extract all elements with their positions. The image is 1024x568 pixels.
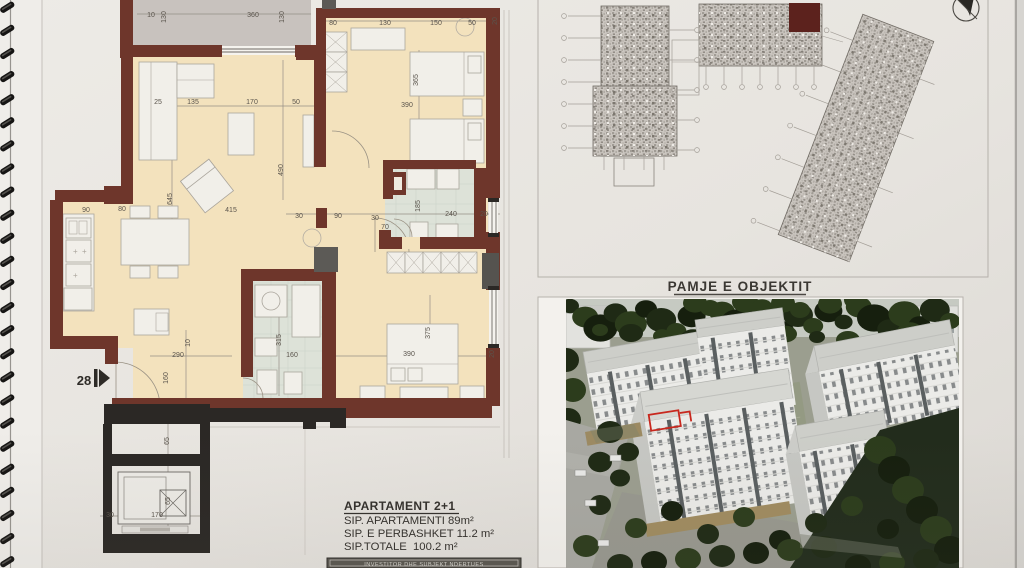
- svg-text:+: +: [73, 271, 78, 280]
- svg-text:185: 185: [415, 200, 422, 212]
- svg-text:+: +: [73, 247, 78, 256]
- svg-text:25: 25: [154, 99, 162, 106]
- svg-text:365: 365: [413, 74, 420, 86]
- svg-text:80: 80: [118, 206, 126, 213]
- svg-text:135: 135: [187, 99, 199, 106]
- svg-text:+: +: [82, 247, 87, 256]
- svg-text:240: 240: [445, 211, 457, 218]
- svg-text:10: 10: [185, 339, 192, 347]
- svg-text:90: 90: [334, 213, 342, 220]
- svg-text:50: 50: [468, 20, 476, 27]
- svg-text:50: 50: [292, 99, 300, 106]
- svg-text:290: 290: [172, 352, 184, 359]
- svg-text:20: 20: [492, 17, 499, 25]
- svg-text:490: 490: [278, 164, 285, 176]
- svg-text:160: 160: [286, 352, 298, 359]
- svg-text:20: 20: [480, 211, 488, 218]
- svg-text:90: 90: [82, 207, 90, 214]
- svg-text:390: 390: [401, 102, 413, 109]
- svg-text:360: 360: [247, 12, 259, 19]
- svg-text:28: 28: [77, 373, 91, 388]
- svg-text:PAMJE E OBJEKTIT: PAMJE E OBJEKTIT: [668, 279, 813, 294]
- svg-text:130: 130: [161, 11, 168, 23]
- svg-text:415: 415: [225, 207, 237, 214]
- svg-text:20: 20: [489, 350, 496, 358]
- svg-text:315: 315: [276, 334, 283, 346]
- svg-text:150: 150: [430, 20, 442, 27]
- svg-text:10: 10: [147, 12, 155, 19]
- svg-text:130: 130: [279, 11, 286, 23]
- svg-text:80: 80: [329, 20, 337, 27]
- svg-text:160: 160: [163, 372, 170, 384]
- svg-text:390: 390: [403, 351, 415, 358]
- svg-text:130: 130: [379, 20, 391, 27]
- svg-text:375: 375: [425, 327, 432, 339]
- svg-text:30: 30: [371, 215, 379, 222]
- svg-text:645: 645: [167, 193, 174, 205]
- svg-text:170: 170: [246, 99, 258, 106]
- svg-text:70: 70: [381, 224, 389, 231]
- svg-text:30: 30: [295, 213, 303, 220]
